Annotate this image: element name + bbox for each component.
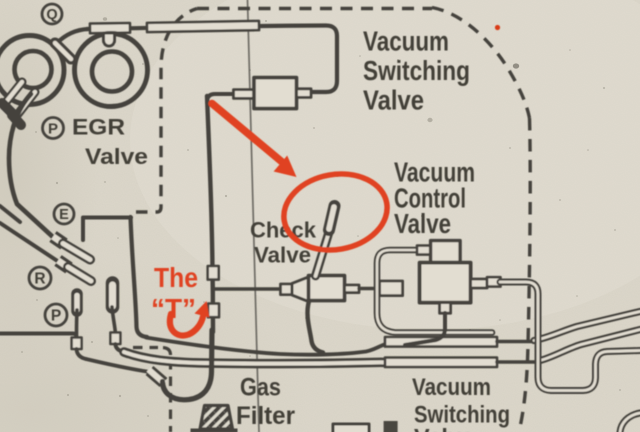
svg-text:Vacuum: Vacuum bbox=[412, 374, 491, 401]
svg-text:Valve: Valve bbox=[394, 208, 451, 239]
svg-text:Filter: Filter bbox=[236, 402, 295, 430]
svg-text:P: P bbox=[48, 120, 58, 137]
svg-text:P: P bbox=[51, 308, 61, 325]
svg-text:R: R bbox=[34, 271, 45, 288]
svg-text:Q: Q bbox=[46, 7, 57, 23]
svg-text:E: E bbox=[59, 207, 69, 223]
svg-text:Valve: Valve bbox=[414, 425, 474, 432]
svg-text:“T”: “T” bbox=[151, 293, 196, 324]
svg-text:Valve: Valve bbox=[85, 144, 148, 169]
svg-text:Valve: Valve bbox=[363, 85, 424, 116]
svg-text:Gas: Gas bbox=[240, 374, 281, 402]
svg-text:EGR: EGR bbox=[72, 115, 125, 140]
svg-text:The: The bbox=[154, 262, 198, 293]
svg-text:Vacuum: Vacuum bbox=[363, 26, 449, 57]
svg-text:Switching: Switching bbox=[363, 55, 470, 86]
